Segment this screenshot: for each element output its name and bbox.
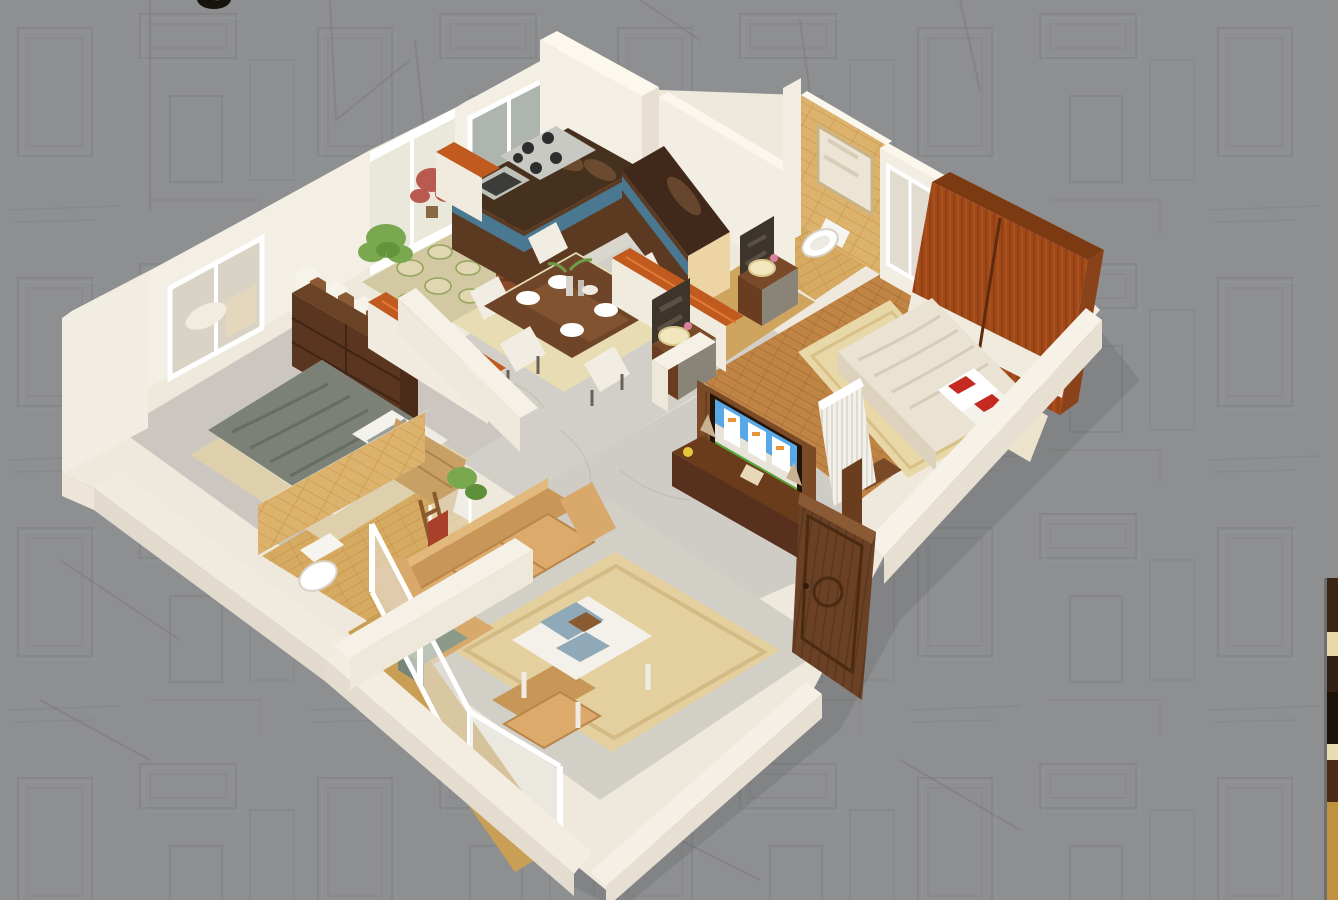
- floor-plan-screenshot: [0, 0, 1338, 900]
- next-image-sliver: [1324, 578, 1338, 900]
- door-handle: [803, 583, 809, 589]
- apartment-render-canvas: [0, 0, 1338, 900]
